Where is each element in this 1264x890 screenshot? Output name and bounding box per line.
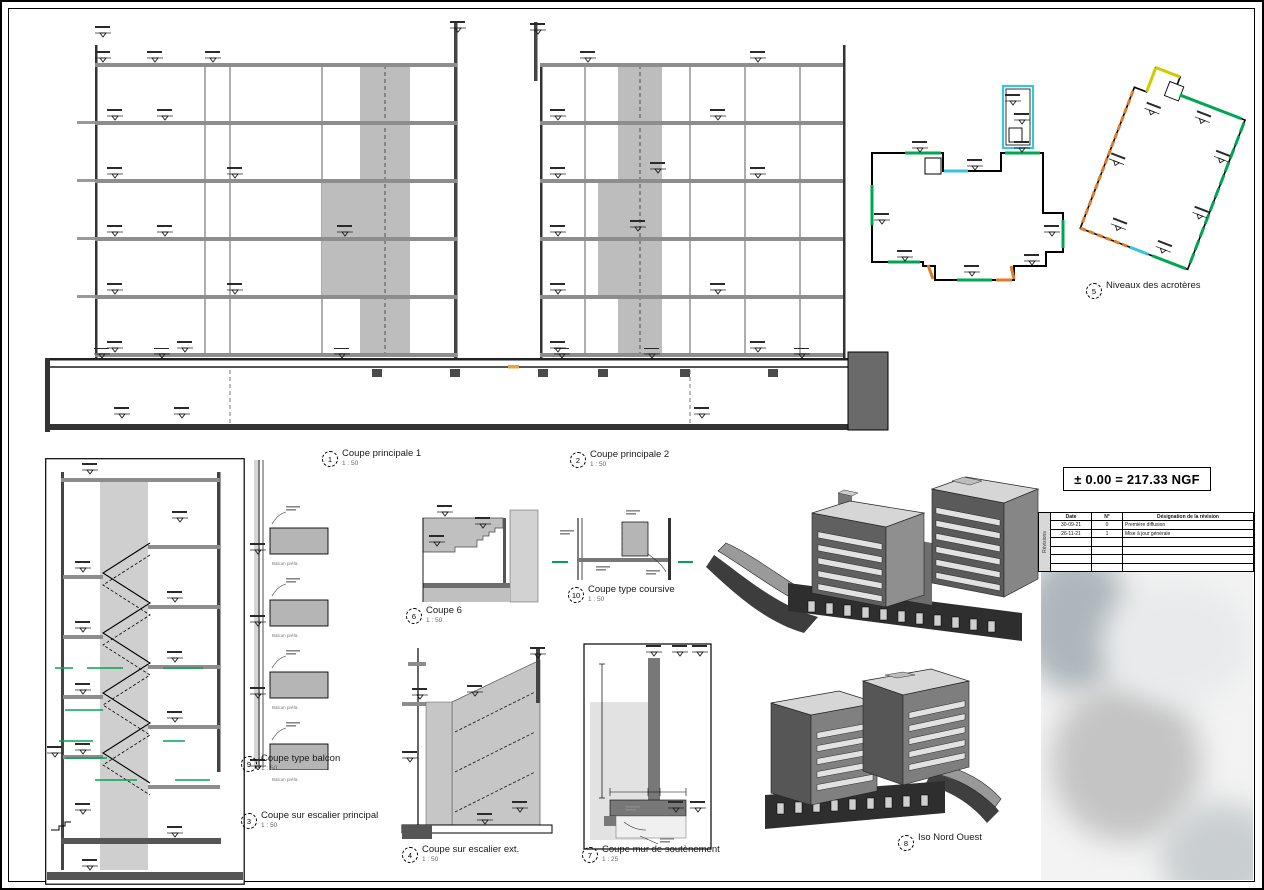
view-title-balcon: 9 Coupe type balcon 1 : 50 — [241, 754, 340, 772]
revision-designation: Première diffusion — [1123, 521, 1253, 528]
revision-row-empty — [1051, 547, 1253, 555]
balcony-label: Balcon préfa. — [272, 561, 299, 566]
revision-header-row: Date N° Désignation de la révision — [1051, 513, 1253, 521]
revision-row: 30-09-21 0 Première diffusion — [1051, 521, 1253, 529]
view-title-label: Coupe principale 1 — [342, 449, 421, 459]
view-title-label: Coupe principale 2 — [590, 450, 669, 460]
view-title-iso: 8 Iso Nord Ouest — [898, 833, 982, 851]
view-title-label: Coupe 6 — [426, 606, 462, 616]
basement-base-drawing — [42, 348, 892, 438]
view-number-badge: 5 — [1086, 283, 1102, 299]
view-number-badge: 2 — [570, 452, 586, 468]
revision-header-designation: Désignation de la révision — [1123, 513, 1253, 520]
coupe-principale-2-drawing — [528, 18, 853, 358]
revision-header-num: N° — [1092, 513, 1123, 520]
soutenement-drawing — [580, 640, 715, 855]
view-number-badge: 4 — [402, 847, 418, 863]
view-number-badge: 7 — [582, 847, 598, 863]
view-scale-label: 1 : 25 — [602, 856, 720, 863]
view-scale-label: 1 : 50 — [342, 460, 421, 467]
revision-row-empty — [1051, 555, 1253, 563]
balcony-label: Balcon préfa. — [272, 633, 299, 638]
view-title-label: Coupe type balcon — [261, 754, 340, 764]
view-scale-label: 1 : 50 — [426, 617, 462, 624]
view-title-coupe1: 1 Coupe principale 1 1 : 50 — [322, 449, 421, 467]
revision-table: Révisions Date N° Désignation de la révi… — [1038, 512, 1254, 572]
iso-view-bottom-drawing — [735, 645, 1005, 855]
revision-header-date: Date — [1051, 513, 1092, 520]
escalier-ext-drawing — [400, 640, 555, 860]
drawing-sheet: Balcon préfa. Balcon préfa. Balcon préfa… — [0, 0, 1264, 890]
revision-num: 0 — [1092, 521, 1123, 528]
view-title-escalier-ext: 4 Coupe sur escalier ext. 1 : 50 — [402, 845, 519, 863]
iso-view-top-drawing — [700, 455, 1040, 650]
view-title-coursive: 10 Coupe type coursive 1 : 50 — [568, 585, 675, 603]
coupe-6-drawing — [415, 500, 545, 605]
view-title-coupe2: 2 Coupe principale 2 1 : 50 — [570, 450, 669, 468]
datum-level-box: ± 0.00 = 217.33 NGF — [1063, 467, 1211, 491]
balcony-label: Balcon préfa. — [272, 777, 299, 782]
view-title-label: Iso Nord Ouest — [918, 833, 982, 843]
revision-row: 26-11-21 1 Mise à jour générale — [1051, 530, 1253, 538]
view-number-badge: 9 — [241, 756, 257, 772]
stair-section-drawing — [45, 458, 245, 885]
view-scale-label: 1 : 50 — [590, 461, 669, 468]
roof-plan-right-drawing — [1068, 58, 1262, 294]
roof-plan-left-drawing — [866, 80, 1072, 295]
view-title-coupe6: 6 Coupe 6 1 : 50 — [406, 606, 462, 624]
balcony-section-drawing — [250, 458, 335, 770]
view-title-label: Coupe sur escalier ext. — [422, 845, 519, 855]
revision-row-empty — [1051, 538, 1253, 546]
view-number-badge: 6 — [406, 608, 422, 624]
view-scale-label: 1 : 50 — [261, 822, 378, 829]
revision-num: 1 — [1092, 530, 1123, 537]
view-title-label: Coupe mur de soutènement — [602, 845, 720, 855]
view-title-acroteres: 5 Niveaux des acrotères — [1086, 281, 1201, 299]
view-title-soutenement: 7 Coupe mur de soutènement 1 : 25 — [582, 845, 720, 863]
view-number-badge: 10 — [568, 587, 584, 603]
revision-row-empty — [1051, 564, 1253, 571]
view-number-badge: 1 — [322, 451, 338, 467]
revision-table-grid: Date N° Désignation de la révision 30-09… — [1051, 513, 1253, 571]
view-scale-label: 1 : 50 — [422, 856, 519, 863]
balcony-label: Balcon préfa. — [272, 705, 299, 710]
view-title-label: Coupe type coursive — [588, 585, 675, 595]
view-scale-label: 1 : 50 — [588, 596, 675, 603]
view-number-badge: 3 — [241, 813, 257, 829]
revision-date: 26-11-21 — [1051, 530, 1092, 537]
view-title-escalier-principal: 3 Coupe sur escalier principal 1 : 50 — [241, 811, 378, 829]
revision-date: 30-09-21 — [1051, 521, 1092, 528]
view-title-label: Niveaux des acrotères — [1106, 281, 1201, 291]
coupe-principale-1-drawing — [45, 18, 470, 358]
redacted-title-block — [1041, 572, 1253, 880]
view-number-badge: 8 — [898, 835, 914, 851]
view-title-label: Coupe sur escalier principal — [261, 811, 378, 821]
view-scale-label: 1 : 50 — [261, 765, 340, 772]
revision-designation: Mise à jour générale — [1123, 530, 1253, 537]
blur-blob — [1101, 582, 1251, 702]
revision-table-side-label: Révisions — [1039, 513, 1051, 571]
